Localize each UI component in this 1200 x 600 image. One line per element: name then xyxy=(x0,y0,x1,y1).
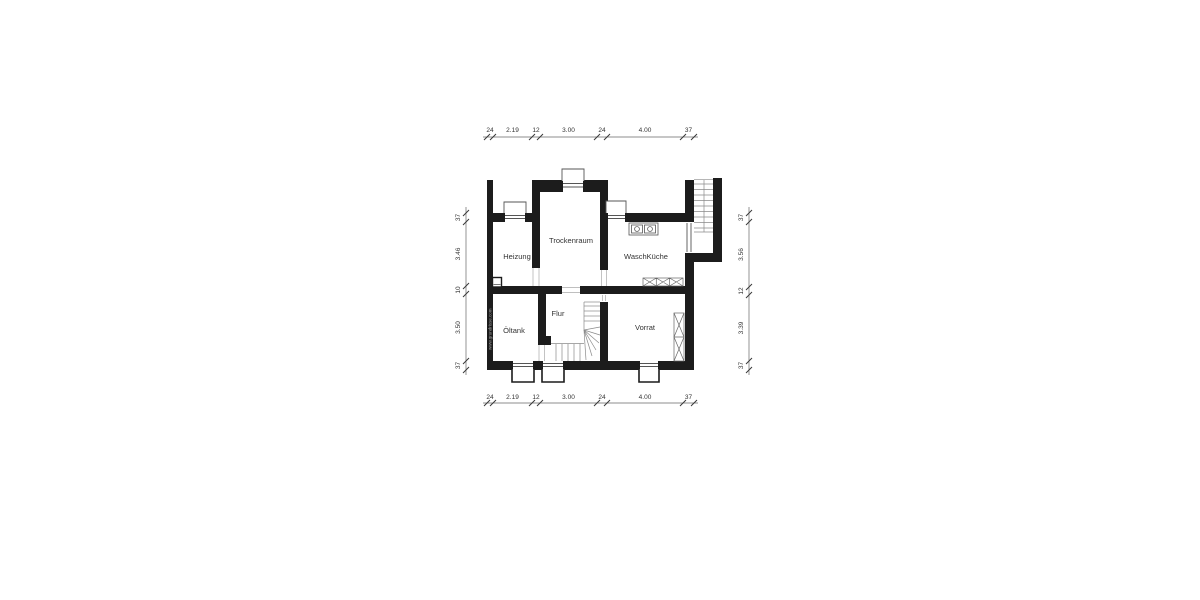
room-label-waschkueche: WaschKüche xyxy=(624,252,668,261)
dim-bottom-4: 24 xyxy=(598,394,606,401)
dim-bottom-1: 2.19 xyxy=(506,394,519,401)
floor-plan-drawing: Heizung Trockenraum WaschKüche Öltank Fl… xyxy=(0,0,1200,600)
dim-right-2: 12 xyxy=(738,287,745,295)
dim-top-4: 24 xyxy=(598,127,606,134)
dim-left-2: 10 xyxy=(455,286,462,294)
dim-bottom-0: 24 xyxy=(486,394,494,401)
dim-bottom-6: 37 xyxy=(685,394,693,401)
dim-right-4: 37 xyxy=(738,362,745,370)
dim-bottom-5: 4.00 xyxy=(639,394,652,401)
wall-bottom-3 xyxy=(563,361,640,370)
dim-left-3: 3.50 xyxy=(455,321,462,334)
wall-divider-trockenraum-wasch xyxy=(600,180,608,270)
dim-top-5: 4.00 xyxy=(639,127,652,134)
dimension-chain-top: 24 2.19 12 3.00 24 4.00 37 xyxy=(483,127,698,140)
room-label-flur: Flur xyxy=(552,309,565,318)
wall-stair-side xyxy=(600,302,608,361)
dim-right-3: 3.39 xyxy=(738,321,745,334)
lightwell-vorrat xyxy=(639,369,659,382)
dimension-chain-bottom: 24 2.19 12 3.00 24 4.00 37 xyxy=(483,394,698,406)
wall-bottom-2 xyxy=(533,361,543,370)
chimney xyxy=(493,278,502,288)
dim-bottom-2: 12 xyxy=(532,394,540,401)
lightwell-oeltank xyxy=(512,369,534,382)
room-label-heizung: Heizung xyxy=(503,252,531,261)
lightwell-flur xyxy=(542,369,564,382)
exterior-stair xyxy=(694,179,713,232)
dim-top-1: 2.19 xyxy=(506,127,519,134)
double-sink xyxy=(629,223,658,235)
dim-left-1: 3.46 xyxy=(455,247,462,260)
dim-bottom-3: 3.00 xyxy=(562,394,575,401)
dim-top-2: 12 xyxy=(532,127,540,134)
wall-right-outer-lower xyxy=(685,262,694,370)
wall-bottom-4 xyxy=(658,361,694,370)
window-recess-heizung xyxy=(504,202,526,213)
wall-middle-right xyxy=(580,286,694,294)
wall-heizung-top-left xyxy=(493,213,505,222)
wall-bottom-1 xyxy=(487,361,513,370)
dim-right-0: 37 xyxy=(738,214,745,222)
floor-plan-page: Heizung Trockenraum WaschKüche Öltank Fl… xyxy=(0,0,1200,600)
wall-wasch-top xyxy=(625,213,694,222)
dim-top-0: 24 xyxy=(486,127,494,134)
window-recess-wasch xyxy=(606,201,626,213)
wall-heizung-top-right xyxy=(525,213,532,222)
wall-divider-heizung-trockenraum xyxy=(532,180,540,268)
room-label-trockenraum: Trockenraum xyxy=(549,236,593,245)
wall-divider-oeltank-flur xyxy=(538,294,546,336)
wall-stair-left-upper xyxy=(685,180,694,222)
dim-top-6: 37 xyxy=(685,127,693,134)
dim-right-1: 3.56 xyxy=(738,248,745,261)
dim-left-0: 37 xyxy=(455,214,462,222)
dim-top-3: 3.00 xyxy=(562,127,575,134)
shelf-hatched xyxy=(674,313,684,361)
wall-divider-oeltank-foot xyxy=(538,336,551,345)
dim-left-4: 37 xyxy=(455,362,462,370)
wall-stair-right-outer xyxy=(713,178,722,262)
window-recess-trockenraum xyxy=(562,169,584,181)
workbench-hatched xyxy=(643,278,683,286)
room-label-oeltank: Öltank xyxy=(503,326,525,335)
dimension-chain-left: 37 3.46 10 3.50 37 xyxy=(455,207,469,375)
room-label-vorrat: Vorrat xyxy=(635,323,656,332)
watermark-text: www.grundrisse.com xyxy=(488,308,493,350)
wall-stair-bottom xyxy=(685,253,722,262)
dimension-chain-right: 37 3.56 12 3.39 37 xyxy=(738,207,752,375)
